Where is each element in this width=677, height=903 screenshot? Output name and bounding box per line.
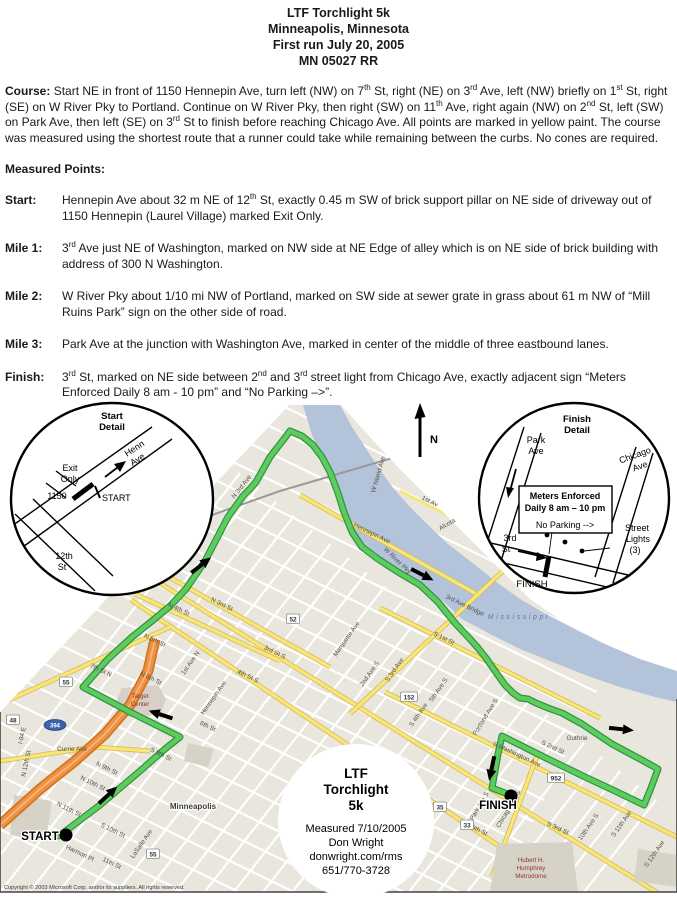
finish-detail-text: Meters Enforced <box>530 491 601 501</box>
measured-point-text: Hennepin Ave about 32 m NE of 12th St, e… <box>62 193 668 224</box>
finish-detail-text: FINISH <box>516 579 547 590</box>
measured-point-row: Mile 1:3rd Ave just NE of Washington, ma… <box>5 241 668 272</box>
target-center-label: Target <box>131 693 148 700</box>
road-shield: 35 <box>434 802 447 812</box>
start-detail-text: St <box>58 562 67 572</box>
course-document: LTF Torchlight 5k Minneapolis, Minnesota… <box>0 0 677 401</box>
river-label: Mississippi <box>488 614 550 621</box>
metrodome-label: Metrodome <box>515 873 547 880</box>
street-label: Currie Ave <box>57 746 87 753</box>
race-info-sub: Don Wright <box>329 837 384 849</box>
course-map: N 4th StN 3rd St3rd St S4th St SN 5th St… <box>0 394 677 899</box>
finish-detail-text: Street <box>625 523 650 533</box>
race-info-title: Torchlight <box>324 782 389 797</box>
svg-text:394: 394 <box>50 723 61 729</box>
race-info-sub: donwright.com/rms <box>310 851 403 863</box>
svg-text:35: 35 <box>436 804 444 811</box>
finish-detail-text: No Parking --> <box>536 520 594 530</box>
course-label: Course: <box>5 84 50 98</box>
svg-text:N: N <box>430 434 438 446</box>
start-detail-text: Detail <box>99 422 125 433</box>
finish-detail-text: 3rd <box>503 533 516 543</box>
map-copyright: Copyright © 2003 Microsoft Corp. and/or … <box>4 884 185 891</box>
header-cert-code: MN 05027 RR <box>0 53 677 69</box>
street-light-dot <box>563 540 568 545</box>
finish-marker-label: FINISH <box>479 800 517 812</box>
measured-point-row: Start:Hennepin Ave about 32 m NE of 12th… <box>5 193 668 224</box>
finish-detail-text: Park <box>527 435 546 445</box>
race-info-title: 5k <box>348 798 364 813</box>
svg-text:55: 55 <box>149 851 157 858</box>
finish-detail-text: (3) <box>630 545 641 555</box>
svg-text:55: 55 <box>62 679 70 686</box>
road-shield: 52 <box>287 614 300 624</box>
street-label: Guthrie <box>567 735 588 742</box>
svg-text:152: 152 <box>404 694 415 701</box>
header-first-run: First run July 20, 2005 <box>0 37 677 53</box>
measured-point-row: Mile 2:W River Pky about 1/10 mi NW of P… <box>5 289 668 320</box>
svg-text:952: 952 <box>551 775 562 782</box>
race-info-title: LTF <box>344 766 368 781</box>
measured-point-row: Mile 3:Park Ave at the junction with Was… <box>5 337 668 353</box>
start-detail-text: START <box>102 493 131 503</box>
svg-text:52: 52 <box>289 616 297 623</box>
road-shield: 952 <box>548 773 565 783</box>
start-detail-text: Start <box>101 411 123 422</box>
race-info-sub: Measured 7/10/2005 <box>306 823 407 835</box>
start-marker-dot <box>60 829 73 842</box>
measured-point-label: Mile 3: <box>5 337 62 353</box>
measured-point-text: Park Ave at the junction with Washington… <box>62 337 668 353</box>
course-text: Start NE in front of 1150 Hennepin Ave, … <box>5 84 667 145</box>
start-marker-label: START <box>21 831 58 843</box>
svg-text:33: 33 <box>463 822 471 829</box>
page-title: LTF Torchlight 5k <box>0 5 677 21</box>
interstate-shield: 394 <box>44 720 66 731</box>
race-info-circle: LTFTorchlight5kMeasured 7/10/2005Don Wri… <box>278 744 434 898</box>
measured-point-text: W River Pky about 1/10 mi NW of Portland… <box>62 289 668 320</box>
metrodome-label: Hubert H. <box>518 857 545 864</box>
finish-detail-text: St <box>502 544 511 554</box>
measured-points-heading: Measured Points: <box>5 162 677 176</box>
road-shield: 55 <box>60 677 73 687</box>
start-detail-inset: StartDetailHennAveExitOnly1150START12thS… <box>2 403 213 595</box>
measured-point-label: Mile 1: <box>5 241 62 272</box>
race-info-sub: 651/770-3728 <box>322 865 390 877</box>
map-svg: N 4th StN 3rd St3rd St S4th St SN 5th St… <box>0 394 677 898</box>
road-shield: 55 <box>147 849 160 859</box>
start-detail-text: Exit <box>62 463 78 473</box>
start-detail-text: Only <box>61 474 80 484</box>
document-header: LTF Torchlight 5k Minneapolis, Minnesota… <box>0 0 677 69</box>
course-description: Course: Start NE in front of 1150 Hennep… <box>5 84 668 146</box>
metrodome-label: Humphrey <box>517 865 546 872</box>
measured-point-label: Mile 2: <box>5 289 62 320</box>
target-center-label: Center <box>131 701 150 708</box>
measured-point-label: Start: <box>5 193 62 224</box>
road-shield: 152 <box>401 692 418 702</box>
city-label: Minneapolis <box>170 802 217 811</box>
start-detail-text: 1150 <box>47 491 66 501</box>
finish-detail-text: Daily 8 am – 10 pm <box>525 503 606 513</box>
measured-points-list: Start:Hennepin Ave about 32 m NE of 12th… <box>0 193 677 401</box>
measured-point-text: 3rd Ave just NE of Washington, marked on… <box>62 241 668 272</box>
finish-detail-text: Detail <box>564 425 590 436</box>
start-detail-text: 12th <box>55 551 73 561</box>
street-light-dot <box>580 549 585 554</box>
header-city: Minneapolis, Minnesota <box>0 21 677 37</box>
finish-detail-text: Ave <box>528 446 543 456</box>
finish-detail-text: Finish <box>563 414 591 425</box>
svg-text:48: 48 <box>9 717 17 724</box>
road-shield: 48 <box>7 715 20 725</box>
north-arrow: N <box>415 403 439 457</box>
road-shield: 33 <box>461 820 474 830</box>
finish-detail-text: Lights <box>626 534 651 544</box>
